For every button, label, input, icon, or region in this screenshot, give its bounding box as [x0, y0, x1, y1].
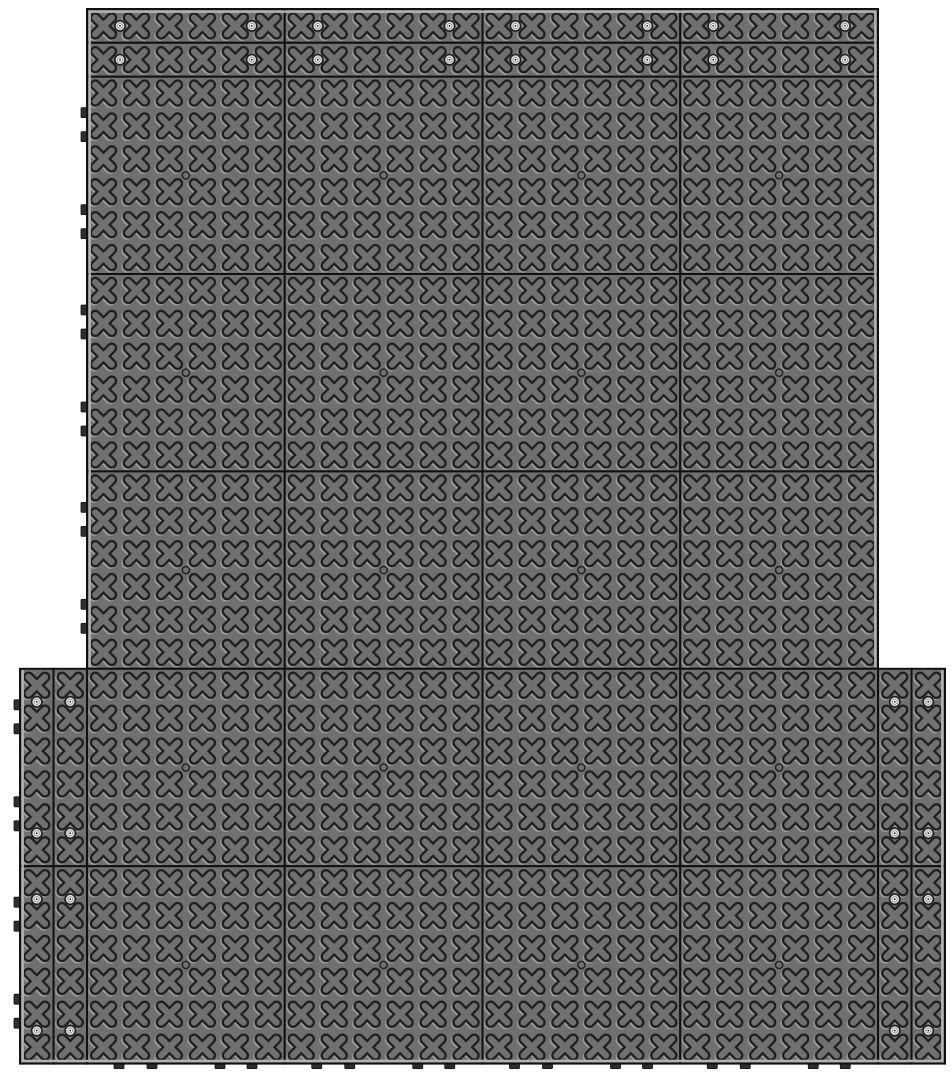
x-tread-motif	[588, 611, 606, 629]
x-tread-motif	[358, 480, 376, 498]
x-tread-motif	[160, 677, 178, 695]
x-tread-motif	[94, 480, 112, 498]
x-tread-motif	[555, 414, 573, 432]
x-tread-motif	[489, 710, 507, 728]
x-tread-motif	[193, 1006, 211, 1024]
x-tread-motif	[522, 85, 540, 103]
x-tread-motif	[654, 414, 672, 432]
x-tread-motif	[27, 809, 45, 827]
x-tread-motif	[193, 216, 211, 234]
x-tread-motif	[456, 710, 474, 728]
x-tread-motif	[720, 52, 738, 70]
screw-icon	[444, 55, 454, 65]
screw-icon	[444, 21, 454, 31]
x-tread-motif	[391, 151, 409, 169]
x-tread-motif	[522, 118, 540, 136]
x-tread-motif	[423, 874, 441, 892]
x-tread-motif	[753, 381, 771, 399]
x-tread-motif	[522, 743, 540, 761]
x-tread-motif	[819, 973, 837, 991]
x-tread-motif	[193, 1039, 211, 1057]
x-tread-motif	[654, 216, 672, 234]
x-tread-motif	[654, 710, 672, 728]
x-tread-motif	[786, 282, 804, 300]
x-tread-motif	[819, 710, 837, 728]
x-tread-motif	[819, 381, 837, 399]
x-tread-motif	[127, 1039, 145, 1057]
x-tread-motif	[259, 85, 277, 103]
x-tread-motif	[753, 315, 771, 333]
x-tread-motif	[127, 85, 145, 103]
x-tread-motif	[852, 611, 870, 629]
x-tread-motif	[919, 710, 937, 728]
x-tread-motif	[259, 1039, 277, 1057]
x-tread-motif	[753, 85, 771, 103]
x-tread-motif	[259, 611, 277, 629]
x-tread-motif	[753, 578, 771, 596]
x-tread-motif	[127, 809, 145, 827]
x-tread-motif	[522, 414, 540, 432]
x-tread-motif	[391, 414, 409, 432]
x-tread-motif	[226, 874, 244, 892]
x-tread-motif	[325, 315, 343, 333]
x-tread-motif	[325, 545, 343, 563]
x-tread-motif	[489, 842, 507, 860]
x-tread-motif	[588, 480, 606, 498]
edge-strip-segment	[87, 43, 285, 77]
x-tread-motif	[885, 776, 903, 794]
x-tread-motif	[720, 973, 738, 991]
x-tread-motif	[94, 184, 112, 202]
floor-tile	[483, 866, 681, 1063]
x-tread-motif	[489, 1006, 507, 1024]
x-tread-motif	[885, 940, 903, 958]
x-tread-motif	[621, 282, 639, 300]
x-tread-motif	[292, 414, 310, 432]
x-tread-motif	[358, 809, 376, 827]
x-tread-motif	[226, 184, 244, 202]
x-tread-motif	[160, 18, 178, 36]
x-tread-motif	[555, 216, 573, 234]
x-tread-motif	[423, 151, 441, 169]
x-tread-motif	[423, 513, 441, 531]
x-tread-motif	[61, 809, 79, 827]
x-tread-motif	[555, 743, 573, 761]
x-tread-motif	[522, 348, 540, 366]
x-tread-motif	[555, 85, 573, 103]
x-tread-motif	[621, 545, 639, 563]
x-tread-motif	[61, 907, 79, 925]
x-tread-motif	[193, 447, 211, 465]
x-tread-motif	[687, 842, 705, 860]
x-tread-motif	[654, 578, 672, 596]
x-tread-motif	[720, 447, 738, 465]
x-tread-motif	[720, 249, 738, 267]
x-tread-motif	[753, 874, 771, 892]
x-tread-motif	[687, 776, 705, 794]
floor-tile	[483, 77, 681, 274]
screw-icon	[923, 697, 933, 707]
x-tread-motif	[160, 907, 178, 925]
x-tread-motif	[292, 315, 310, 333]
x-tread-motif	[292, 809, 310, 827]
x-tread-motif	[621, 513, 639, 531]
x-tread-motif	[423, 18, 441, 36]
x-tread-motif	[226, 216, 244, 234]
x-tread-motif	[489, 578, 507, 596]
x-tread-motif	[588, 545, 606, 563]
x-tread-motif	[456, 381, 474, 399]
x-tread-motif	[522, 809, 540, 827]
x-tread-motif	[456, 414, 474, 432]
x-tread-motif	[456, 85, 474, 103]
x-tread-motif	[654, 940, 672, 958]
x-tread-motif	[127, 973, 145, 991]
x-tread-motif	[259, 874, 277, 892]
x-tread-motif	[423, 249, 441, 267]
x-tread-motif	[226, 348, 244, 366]
x-tread-motif	[753, 545, 771, 563]
x-tread-motif	[687, 249, 705, 267]
x-tread-motif	[786, 249, 804, 267]
edge-strip-segment	[878, 866, 912, 1063]
screw-icon	[65, 697, 75, 707]
x-tread-motif	[522, 216, 540, 234]
screw-icon	[708, 55, 718, 65]
x-tread-motif	[852, 545, 870, 563]
x-tread-motif	[621, 710, 639, 728]
floor-tile	[680, 471, 878, 668]
x-tread-motif	[621, 348, 639, 366]
x-tread-motif	[94, 315, 112, 333]
x-tread-motif	[193, 282, 211, 300]
x-tread-motif	[819, 776, 837, 794]
x-tread-motif	[456, 578, 474, 596]
x-tread-motif	[654, 907, 672, 925]
x-tread-motif	[588, 52, 606, 70]
x-tread-motif	[720, 513, 738, 531]
x-tread-motif	[292, 18, 310, 36]
x-tread-motif	[423, 1006, 441, 1024]
x-tread-motif	[226, 1006, 244, 1024]
x-tread-motif	[919, 973, 937, 991]
x-tread-motif	[489, 348, 507, 366]
x-tread-motif	[588, 151, 606, 169]
x-tread-motif	[654, 776, 672, 794]
x-tread-motif	[358, 414, 376, 432]
x-tread-motif	[522, 447, 540, 465]
x-tread-motif	[358, 611, 376, 629]
x-tread-motif	[423, 545, 441, 563]
x-tread-motif	[456, 874, 474, 892]
x-tread-motif	[358, 907, 376, 925]
x-tread-motif	[621, 381, 639, 399]
x-tread-motif	[423, 315, 441, 333]
x-tread-motif	[193, 578, 211, 596]
x-tread-motif	[456, 118, 474, 136]
x-tread-motif	[621, 184, 639, 202]
x-tread-motif	[391, 776, 409, 794]
x-tread-motif	[456, 940, 474, 958]
edge-strip-segment	[20, 669, 54, 866]
x-tread-motif	[292, 874, 310, 892]
x-tread-motif	[292, 677, 310, 695]
x-tread-motif	[588, 216, 606, 234]
x-tread-motif	[489, 480, 507, 498]
x-tread-motif	[522, 249, 540, 267]
x-tread-motif	[456, 348, 474, 366]
x-tread-motif	[456, 1039, 474, 1057]
floor-tile	[285, 669, 483, 866]
x-tread-motif	[27, 1039, 45, 1057]
x-tread-motif	[786, 842, 804, 860]
floor-tile	[87, 669, 285, 866]
x-tread-motif	[226, 151, 244, 169]
x-tread-motif	[94, 151, 112, 169]
x-tread-motif	[391, 611, 409, 629]
x-tread-motif	[456, 973, 474, 991]
screw-icon	[890, 894, 900, 904]
x-tread-motif	[423, 842, 441, 860]
x-tread-motif	[358, 677, 376, 695]
x-tread-motif	[292, 52, 310, 70]
x-tread-motif	[325, 447, 343, 465]
x-tread-motif	[687, 414, 705, 432]
x-tread-motif	[621, 677, 639, 695]
x-tread-motif	[325, 381, 343, 399]
x-tread-motif	[358, 216, 376, 234]
x-tread-motif	[325, 348, 343, 366]
x-tread-motif	[720, 644, 738, 662]
x-tread-motif	[358, 1006, 376, 1024]
x-tread-motif	[588, 1039, 606, 1057]
x-tread-motif	[423, 282, 441, 300]
x-tread-motif	[391, 874, 409, 892]
x-tread-motif	[193, 414, 211, 432]
x-tread-motif	[786, 52, 804, 70]
floor-tile	[285, 77, 483, 274]
x-tread-motif	[127, 348, 145, 366]
x-tread-motif	[127, 18, 145, 36]
x-tread-motif	[852, 381, 870, 399]
x-tread-motif	[621, 973, 639, 991]
x-tread-motif	[358, 85, 376, 103]
x-tread-motif	[489, 545, 507, 563]
x-tread-motif	[654, 18, 672, 36]
screw-icon	[890, 697, 900, 707]
x-tread-motif	[292, 644, 310, 662]
x-tread-motif	[358, 545, 376, 563]
x-tread-motif	[27, 874, 45, 892]
x-tread-motif	[27, 776, 45, 794]
x-tread-motif	[819, 414, 837, 432]
x-tread-motif	[423, 940, 441, 958]
x-tread-motif	[753, 940, 771, 958]
screw-icon	[115, 55, 125, 65]
edge-strip-segment	[54, 669, 88, 866]
x-tread-motif	[94, 578, 112, 596]
x-tread-motif	[885, 710, 903, 728]
x-tread-motif	[193, 513, 211, 531]
x-tread-motif	[325, 249, 343, 267]
x-tread-motif	[193, 907, 211, 925]
x-tread-motif	[720, 545, 738, 563]
x-tread-motif	[391, 1006, 409, 1024]
x-tread-motif	[753, 151, 771, 169]
x-tread-motif	[621, 578, 639, 596]
x-tread-motif	[654, 85, 672, 103]
x-tread-motif	[555, 282, 573, 300]
x-tread-motif	[292, 578, 310, 596]
x-tread-motif	[621, 18, 639, 36]
x-tread-motif	[358, 874, 376, 892]
x-tread-motif	[160, 545, 178, 563]
x-tread-motif	[489, 151, 507, 169]
x-tread-motif	[555, 249, 573, 267]
x-tread-motif	[852, 85, 870, 103]
x-tread-motif	[423, 973, 441, 991]
x-tread-motif	[786, 381, 804, 399]
x-tread-motif	[456, 184, 474, 202]
edge-strip-segment	[912, 866, 946, 1063]
x-tread-motif	[94, 973, 112, 991]
x-tread-motif	[226, 18, 244, 36]
x-tread-motif	[687, 151, 705, 169]
x-tread-motif	[127, 842, 145, 860]
x-tread-motif	[720, 184, 738, 202]
x-tread-motif	[588, 644, 606, 662]
x-tread-motif	[259, 348, 277, 366]
floor-tile	[680, 866, 878, 1063]
x-tread-motif	[193, 545, 211, 563]
x-tread-motif	[687, 118, 705, 136]
x-tread-motif	[522, 151, 540, 169]
x-tread-motif	[292, 973, 310, 991]
x-tread-motif	[259, 447, 277, 465]
floor-tile	[483, 274, 681, 471]
floor-tile	[285, 274, 483, 471]
floor-tile	[680, 669, 878, 866]
x-tread-motif	[852, 249, 870, 267]
x-tread-motif	[885, 842, 903, 860]
x-tread-motif	[489, 52, 507, 70]
x-tread-motif	[489, 940, 507, 958]
x-tread-motif	[489, 513, 507, 531]
x-tread-motif	[687, 18, 705, 36]
x-tread-motif	[555, 18, 573, 36]
x-tread-motif	[127, 52, 145, 70]
x-tread-motif	[160, 52, 178, 70]
x-tread-motif	[423, 85, 441, 103]
x-tread-motif	[621, 118, 639, 136]
x-tread-motif	[654, 282, 672, 300]
x-tread-motif	[654, 644, 672, 662]
x-tread-motif	[325, 513, 343, 531]
x-tread-motif	[720, 743, 738, 761]
x-tread-motif	[160, 940, 178, 958]
x-tread-motif	[852, 874, 870, 892]
x-tread-motif	[786, 776, 804, 794]
x-tread-motif	[687, 907, 705, 925]
x-tread-motif	[522, 907, 540, 925]
x-tread-motif	[654, 381, 672, 399]
x-tread-motif	[720, 315, 738, 333]
screw-icon	[923, 828, 933, 838]
x-tread-motif	[555, 677, 573, 695]
x-tread-motif	[325, 776, 343, 794]
x-tread-motif	[160, 513, 178, 531]
x-tread-motif	[555, 381, 573, 399]
x-tread-motif	[819, 480, 837, 498]
x-tread-motif	[753, 480, 771, 498]
screw-icon	[32, 697, 42, 707]
x-tread-motif	[259, 743, 277, 761]
screw-icon	[708, 21, 718, 31]
x-tread-motif	[919, 743, 937, 761]
x-tread-motif	[292, 85, 310, 103]
x-tread-motif	[456, 907, 474, 925]
x-tread-motif	[423, 611, 441, 629]
x-tread-motif	[27, 973, 45, 991]
x-tread-motif	[489, 85, 507, 103]
x-tread-motif	[325, 1039, 343, 1057]
x-tread-motif	[259, 973, 277, 991]
x-tread-motif	[358, 644, 376, 662]
x-tread-motif	[786, 85, 804, 103]
x-tread-motif	[193, 52, 211, 70]
edge-strip-segment	[912, 669, 946, 866]
top-edge-strips	[87, 9, 878, 77]
x-tread-motif	[226, 677, 244, 695]
x-tread-motif	[358, 118, 376, 136]
x-tread-motif	[919, 874, 937, 892]
x-tread-motif	[391, 644, 409, 662]
x-tread-motif	[489, 118, 507, 136]
x-tread-motif	[621, 249, 639, 267]
x-tread-motif	[753, 907, 771, 925]
x-tread-motif	[391, 118, 409, 136]
x-tread-motif	[226, 85, 244, 103]
x-tread-motif	[555, 907, 573, 925]
screw-icon	[247, 55, 257, 65]
x-tread-motif	[456, 1006, 474, 1024]
x-tread-motif	[456, 513, 474, 531]
x-tread-motif	[292, 743, 310, 761]
x-tread-motif	[852, 578, 870, 596]
x-tread-motif	[621, 414, 639, 432]
x-tread-motif	[720, 480, 738, 498]
x-tread-motif	[753, 18, 771, 36]
x-tread-motif	[226, 973, 244, 991]
x-tread-motif	[654, 842, 672, 860]
screw-icon	[32, 894, 42, 904]
x-tread-motif	[226, 480, 244, 498]
x-tread-motif	[160, 1006, 178, 1024]
x-tread-motif	[259, 118, 277, 136]
x-tread-motif	[193, 480, 211, 498]
x-tread-motif	[160, 578, 178, 596]
x-tread-motif	[819, 644, 837, 662]
x-tread-motif	[325, 611, 343, 629]
x-tread-motif	[127, 447, 145, 465]
x-tread-motif	[522, 18, 540, 36]
x-tread-motif	[489, 381, 507, 399]
x-tread-motif	[27, 743, 45, 761]
x-tread-motif	[786, 809, 804, 827]
x-tread-motif	[358, 743, 376, 761]
x-tread-motif	[720, 907, 738, 925]
x-tread-motif	[259, 644, 277, 662]
